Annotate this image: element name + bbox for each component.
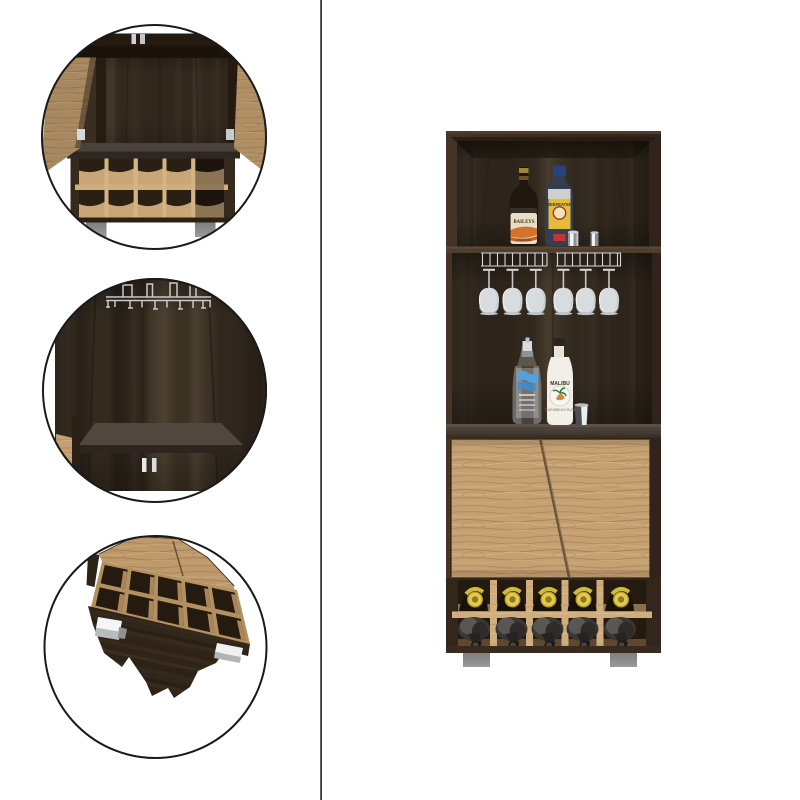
svg-text:MALIBU: MALIBU	[550, 381, 570, 387]
svg-text:ORIGINAL: ORIGINAL	[516, 238, 532, 242]
svg-text:BAILEYS: BAILEYS	[513, 220, 534, 225]
svg-text:BEEFEATER: BEEFEATER	[547, 202, 572, 207]
svg-text:CARIBBEAN RUM: CARIBBEAN RUM	[545, 408, 575, 412]
